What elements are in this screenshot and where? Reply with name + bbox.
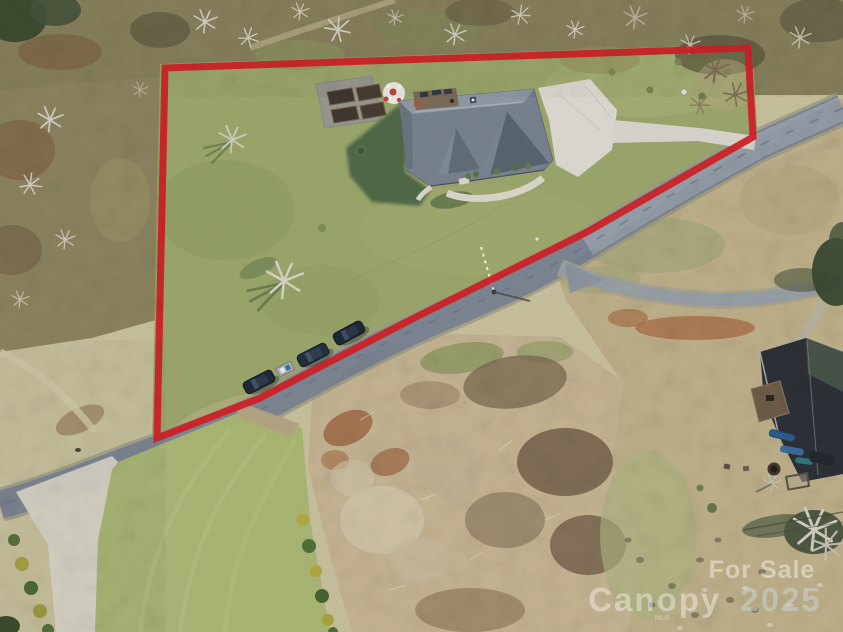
watermark-for-sale: For Sale bbox=[709, 556, 816, 584]
watermark-brand: Canopy 2025 bbox=[588, 581, 822, 618]
aerial-photo-stage: For Sale Canopy 2025 MLS bbox=[0, 0, 843, 632]
grain-fine bbox=[0, 0, 843, 632]
aerial-scene: For Sale Canopy 2025 MLS bbox=[0, 0, 843, 632]
watermark-fine-print: MLS bbox=[655, 615, 670, 622]
